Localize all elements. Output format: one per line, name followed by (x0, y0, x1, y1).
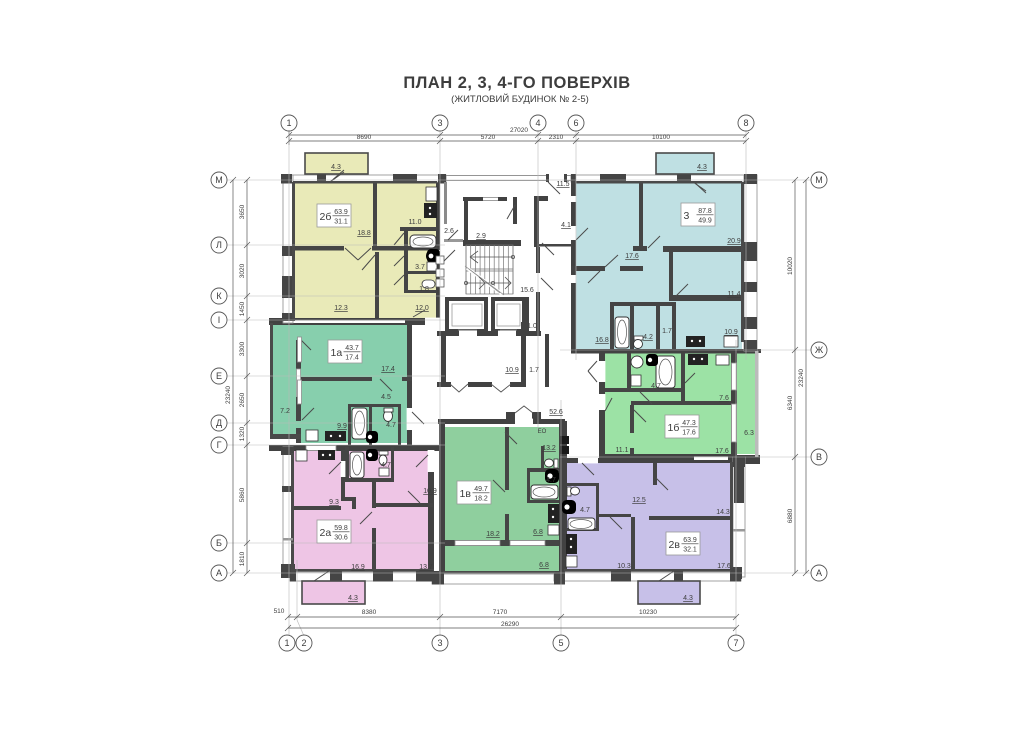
svg-text:1.7: 1.7 (662, 328, 672, 335)
svg-text:4.1: 4.1 (561, 222, 571, 229)
svg-text:49.9: 49.9 (698, 218, 712, 225)
svg-text:1.8: 1.8 (419, 286, 429, 293)
svg-text:20.9: 20.9 (727, 238, 741, 245)
svg-text:М: М (215, 175, 223, 185)
svg-text:30.6: 30.6 (334, 535, 348, 542)
svg-text:23240: 23240 (798, 369, 805, 387)
svg-text:63.9: 63.9 (683, 537, 697, 544)
svg-text:32.1: 32.1 (683, 547, 697, 554)
svg-text:10100: 10100 (652, 134, 670, 141)
svg-text:3: 3 (437, 638, 442, 648)
svg-text:14.3: 14.3 (716, 509, 730, 516)
svg-text:6.3: 6.3 (744, 430, 754, 437)
svg-text:4.5: 4.5 (381, 394, 391, 401)
svg-text:3650: 3650 (239, 204, 246, 219)
svg-text:23240: 23240 (225, 386, 232, 404)
svg-text:4.3: 4.3 (683, 595, 693, 602)
svg-text:11.5: 11.5 (556, 181, 569, 188)
svg-text:5: 5 (558, 638, 563, 648)
svg-text:І: І (218, 315, 221, 325)
svg-text:6.8: 6.8 (539, 562, 549, 569)
svg-text:2в: 2в (669, 539, 681, 551)
svg-text:4.3: 4.3 (331, 164, 341, 171)
svg-text:Ж: Ж (815, 345, 824, 355)
svg-text:52.6: 52.6 (549, 409, 563, 416)
svg-text:1а: 1а (331, 347, 343, 359)
svg-text:11.1: 11.1 (615, 447, 628, 454)
svg-text:А: А (816, 568, 822, 578)
svg-text:Л: Л (216, 240, 222, 250)
svg-text:2: 2 (301, 638, 306, 648)
svg-text:18.2: 18.2 (474, 496, 488, 503)
svg-text:4.2: 4.2 (643, 334, 653, 341)
svg-text:2.6: 2.6 (444, 228, 454, 235)
svg-text:8690: 8690 (357, 134, 372, 141)
svg-text:43.7: 43.7 (345, 345, 359, 352)
svg-text:1320: 1320 (239, 426, 246, 441)
svg-text:(ЖИТЛОВИЙ БУДИНОК № 2-5): (ЖИТЛОВИЙ БУДИНОК № 2-5) (451, 93, 589, 105)
svg-text:17.6: 17.6 (717, 563, 731, 570)
svg-text:3300: 3300 (239, 341, 246, 356)
svg-text:3.7: 3.7 (415, 264, 425, 271)
svg-text:4.7: 4.7 (386, 422, 396, 429)
svg-text:17.6: 17.6 (625, 253, 639, 260)
svg-text:М: М (815, 175, 823, 185)
svg-text:17.6: 17.6 (715, 448, 729, 455)
svg-text:6.8: 6.8 (533, 529, 543, 536)
svg-text:17.4: 17.4 (345, 355, 359, 362)
svg-text:4.7: 4.7 (546, 477, 556, 484)
svg-text:4.7: 4.7 (580, 507, 590, 514)
svg-text:15.6: 15.6 (520, 287, 534, 294)
svg-text:10230: 10230 (639, 609, 657, 616)
svg-text:Е: Е (216, 371, 222, 381)
svg-text:27020: 27020 (510, 127, 528, 134)
svg-text:18.8: 18.8 (357, 230, 371, 237)
svg-text:6: 6 (573, 118, 578, 128)
svg-text:7.2: 7.2 (280, 408, 290, 415)
svg-text:49.7: 49.7 (474, 486, 488, 493)
svg-text:3: 3 (437, 118, 442, 128)
svg-text:А: А (216, 568, 222, 578)
svg-text:В: В (816, 452, 822, 462)
svg-text:13.2: 13.2 (542, 445, 556, 452)
svg-text:17.4: 17.4 (381, 366, 395, 373)
svg-text:10020: 10020 (787, 257, 794, 275)
svg-text:2650: 2650 (239, 392, 246, 407)
svg-text:59.8: 59.8 (334, 525, 348, 532)
svg-text:ПЛАН 2, 3, 4-ГО ПОВЕРХІВ: ПЛАН 2, 3, 4-ГО ПОВЕРХІВ (403, 74, 630, 92)
svg-text:10.3: 10.3 (617, 563, 631, 570)
svg-text:Б: Б (216, 538, 222, 548)
svg-text:8: 8 (743, 118, 748, 128)
svg-text:1б: 1б (668, 422, 680, 434)
svg-text:4: 4 (535, 118, 540, 128)
svg-text:31.1: 31.1 (334, 219, 348, 226)
svg-text:1.7: 1.7 (529, 367, 539, 374)
svg-text:8380: 8380 (362, 609, 377, 616)
svg-text:1450: 1450 (239, 301, 246, 316)
svg-text:10.9: 10.9 (423, 488, 437, 495)
svg-text:1: 1 (284, 638, 289, 648)
svg-text:7170: 7170 (493, 609, 508, 616)
svg-text:510: 510 (274, 608, 285, 615)
svg-text:10.9: 10.9 (505, 367, 519, 374)
svg-text:2310: 2310 (549, 134, 564, 141)
svg-text:13.7: 13.7 (419, 564, 433, 571)
svg-text:2б: 2б (320, 211, 332, 223)
svg-text:7.6: 7.6 (719, 395, 729, 402)
svg-text:6340: 6340 (787, 395, 794, 410)
svg-text:9.3: 9.3 (329, 499, 339, 506)
svg-text:6880: 6880 (787, 508, 794, 523)
svg-text:12.5: 12.5 (632, 497, 646, 504)
svg-text:47.3: 47.3 (682, 420, 696, 427)
svg-text:5860: 5860 (239, 487, 246, 502)
svg-text:26290: 26290 (501, 621, 519, 628)
svg-text:Г: Г (217, 440, 222, 450)
svg-text:2.9: 2.9 (476, 233, 486, 240)
svg-text:17.6: 17.6 (682, 430, 696, 437)
svg-text:63.9: 63.9 (334, 209, 348, 216)
svg-text:3020: 3020 (239, 263, 246, 278)
svg-text:7: 7 (733, 638, 738, 648)
svg-text:Д: Д (216, 418, 222, 428)
svg-text:4.3: 4.3 (348, 595, 358, 602)
svg-text:11.4: 11.4 (727, 291, 740, 298)
svg-text:1.0: 1.0 (527, 323, 537, 330)
svg-text:1в: 1в (460, 488, 472, 500)
svg-text:3: 3 (684, 210, 690, 222)
svg-text:9.9: 9.9 (337, 423, 347, 430)
svg-text:11.0: 11.0 (408, 219, 421, 226)
svg-text:4.7: 4.7 (381, 462, 391, 469)
svg-text:1: 1 (286, 118, 291, 128)
svg-text:12.3: 12.3 (334, 305, 348, 312)
svg-text:18.2: 18.2 (486, 531, 500, 538)
svg-text:4.3: 4.3 (697, 164, 707, 171)
svg-text:12.0: 12.0 (415, 305, 429, 312)
svg-text:ЕО: ЕО (538, 429, 547, 435)
svg-text:4.7: 4.7 (651, 383, 661, 390)
svg-text:16.9: 16.9 (351, 564, 365, 571)
svg-text:5720: 5720 (481, 134, 496, 141)
svg-text:87.8: 87.8 (698, 208, 712, 215)
svg-text:1810: 1810 (239, 551, 246, 566)
svg-text:16.8: 16.8 (595, 337, 609, 344)
svg-text:10.9: 10.9 (724, 329, 738, 336)
svg-text:К: К (216, 291, 222, 301)
svg-text:2а: 2а (320, 527, 332, 539)
